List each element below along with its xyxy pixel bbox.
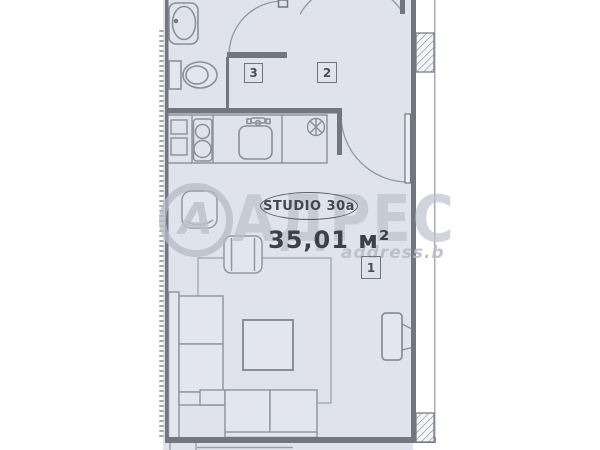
room-label-living: 1 [361,256,381,279]
column-hatch-top [416,33,434,72]
watermark-logo-letter: А [179,198,213,242]
watermark-logo-circle: А [159,183,233,257]
floor-plan: А АДРЕС address.b STUDIO 30a 35,01 м² 1 … [0,0,600,450]
coffee-table [243,320,293,370]
column-hatch-bottom [416,413,434,442]
entrance-door-leaf [405,114,411,183]
toilet [169,61,217,89]
room-label-hall: 2 [317,62,337,83]
door-post [279,0,288,7]
unit-area-label: 35,01 м² [268,226,390,254]
unit-name-badge: STUDIO 30a [260,192,358,220]
room-label-bathroom: 3 [244,63,263,83]
